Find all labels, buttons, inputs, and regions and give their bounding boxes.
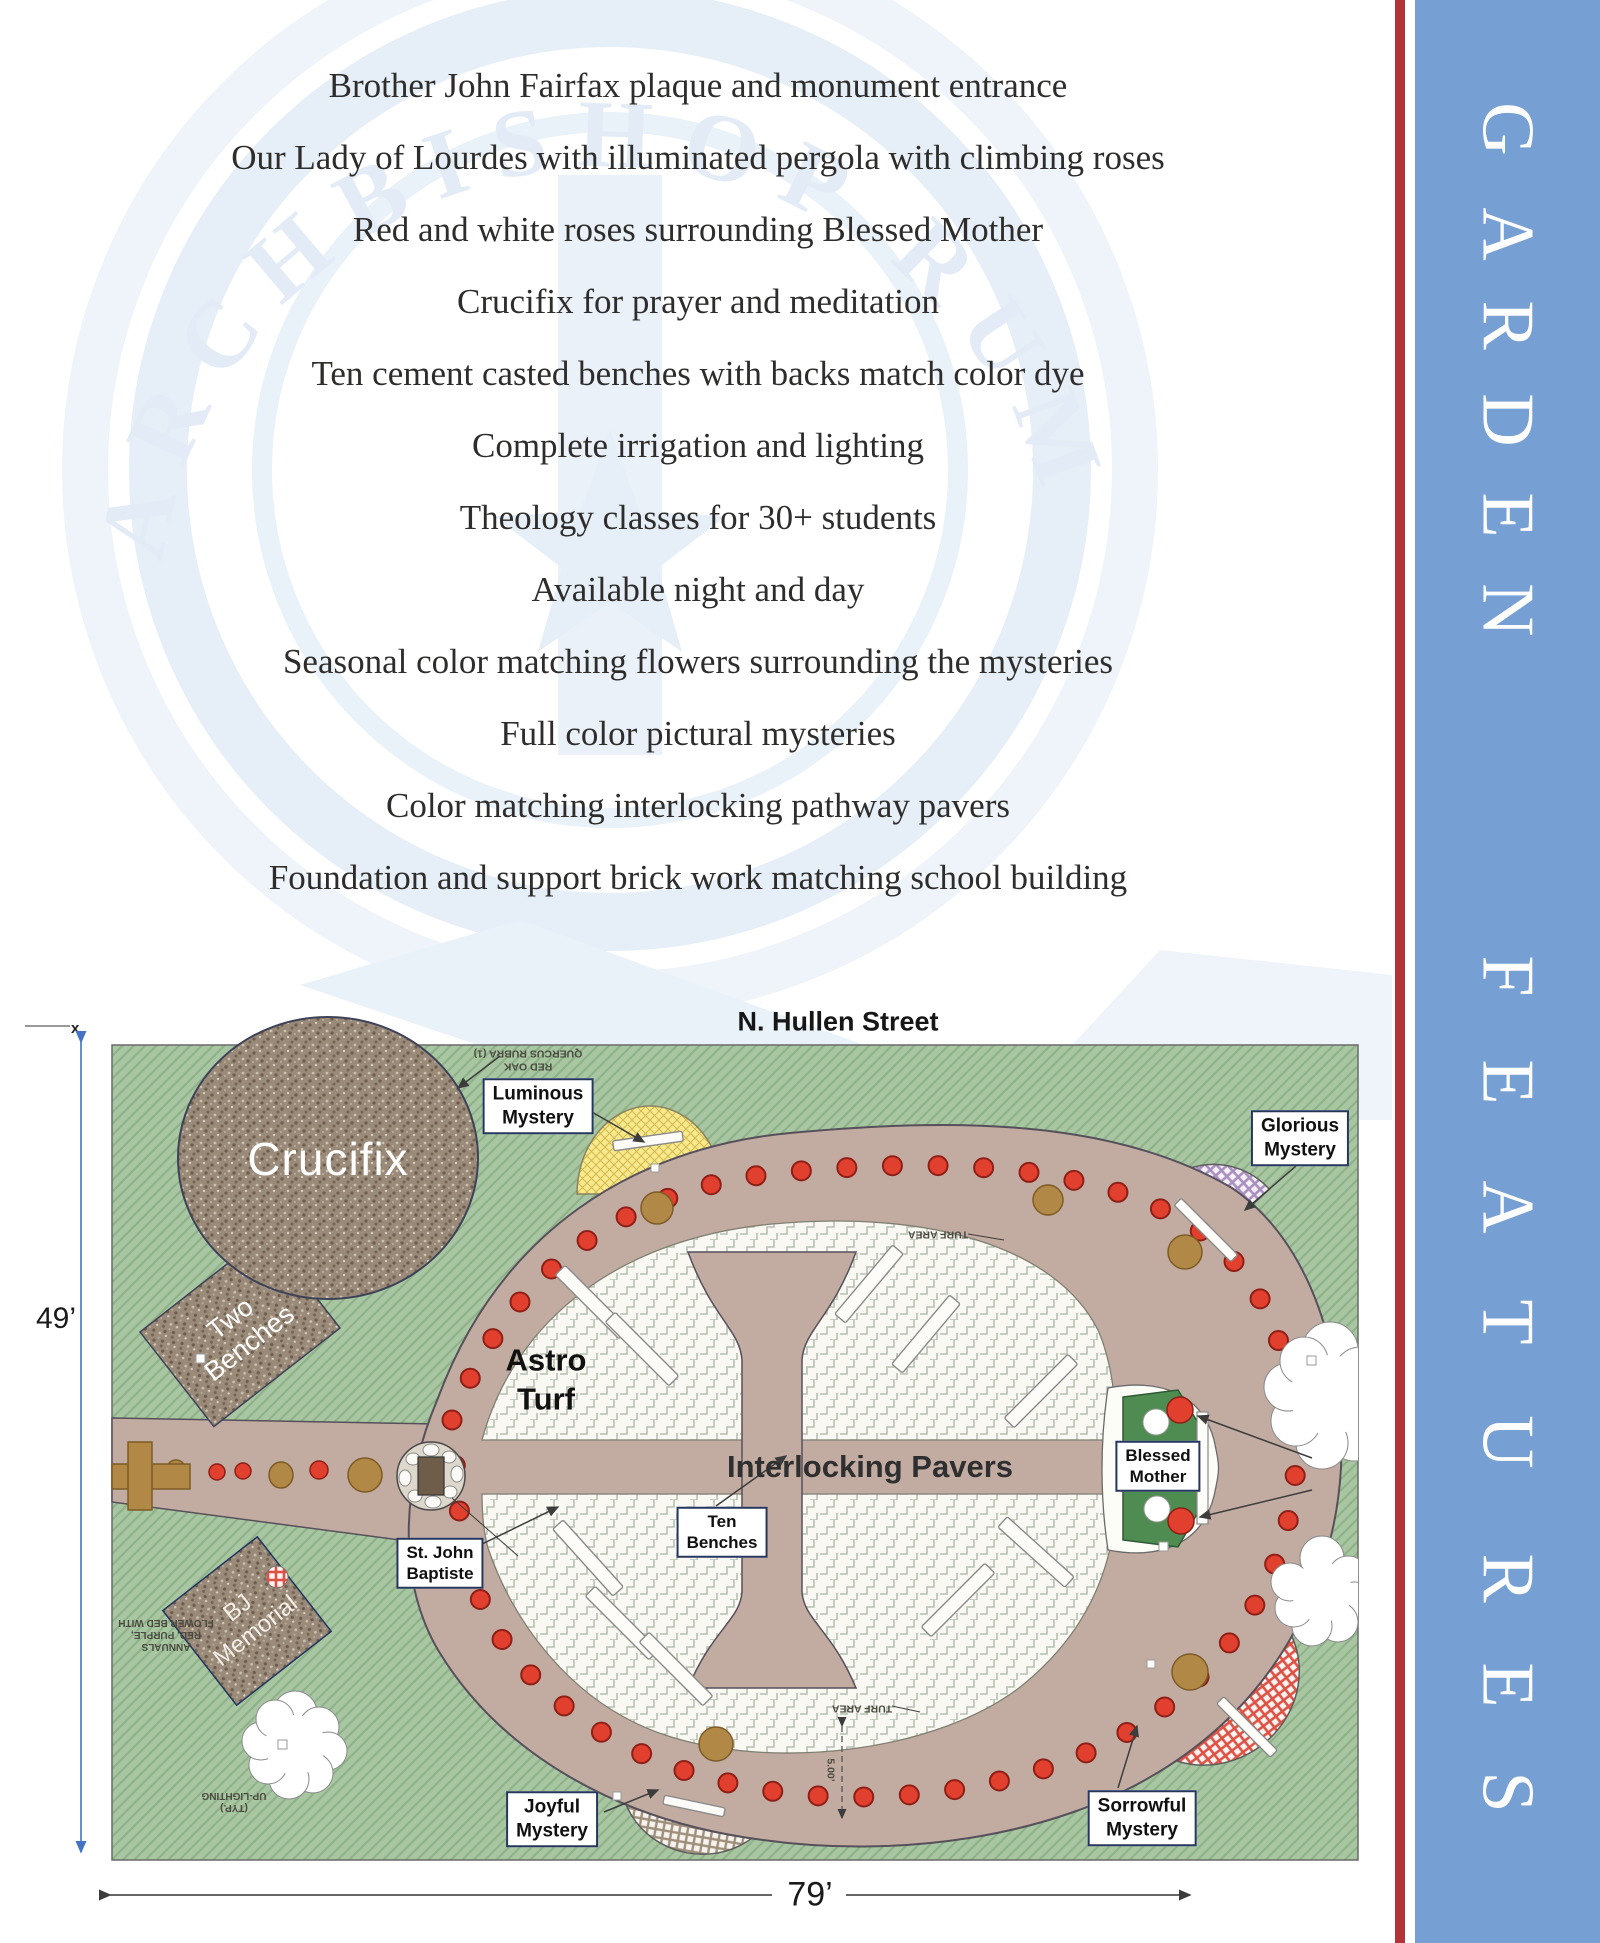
ten-benches-label: Ten Benches: [677, 1507, 768, 1558]
feature-item: Brother John Fairfax plaque and monument…: [0, 50, 1396, 122]
height-dimension: x: [25, 1020, 81, 1852]
garden-features-banner: G A R D E N F E A T U R E S: [1415, 0, 1600, 1943]
blessed-mother-label: Blessed Mother: [1115, 1441, 1200, 1492]
red-accent-stripe: [1395, 0, 1405, 1943]
crucifix-label: Crucifix: [247, 1132, 408, 1186]
feature-item: Crucifix for prayer and meditation: [0, 266, 1396, 338]
uplighting-annotation: (TYP.) UP-LIGHTING: [202, 1789, 267, 1813]
feature-item: Seasonal color matching flowers surround…: [0, 626, 1396, 698]
svg-text:x: x: [71, 1020, 80, 1037]
st-john-baptiste-label: St. John Baptiste: [396, 1538, 483, 1589]
feature-item: Complete irrigation and lighting: [0, 410, 1396, 482]
spacing-annotation: 5.00’: [824, 1758, 837, 1781]
sorrowful-mystery-label: Sorrowful Mystery: [1088, 1790, 1197, 1846]
feature-item: Available night and day: [0, 554, 1396, 626]
banner-letter: S: [1466, 1700, 1550, 1885]
feature-item: Full color pictural mysteries: [0, 698, 1396, 770]
feature-item: Foundation and support brick work matchi…: [0, 842, 1396, 914]
garden-features-list: Brother John Fairfax plaque and monument…: [0, 50, 1396, 914]
width-dim-label: 79’: [787, 1876, 832, 1915]
quercus-annotation: RED OAK QUERCUS RUBRA (1): [474, 1047, 583, 1072]
feature-item: Our Lady of Lourdes with illuminated per…: [0, 122, 1396, 194]
feature-item: Ten cement casted benches with backs mat…: [0, 338, 1396, 410]
turf-area-annotation-top: TURF AREA: [908, 1228, 968, 1241]
flower-bed-annotation: ANNUALS RED, PURPLE, FLOWER BED WITH: [118, 1616, 214, 1652]
glorious-mystery-label: Glorious Mystery: [1251, 1110, 1349, 1166]
pavers-label: Interlocking Pavers: [727, 1449, 1013, 1485]
turf-area-annotation-bottom: TURF AREA: [832, 1702, 892, 1715]
luminous-mystery-label: Luminous Mystery: [483, 1078, 594, 1134]
feature-item: Red and white roses surrounding Blessed …: [0, 194, 1396, 266]
feature-item: Theology classes for 30+ students: [0, 482, 1396, 554]
banner-letter: N: [1466, 518, 1550, 703]
street-label: N. Hullen Street: [737, 1007, 938, 1038]
feature-item: Color matching interlocking pathway pave…: [0, 770, 1396, 842]
brochure-page: ARCHBISHOP RUMMEL Brother John Fairfax p…: [0, 0, 1600, 1943]
height-dim-label: 49’: [8, 1302, 76, 1336]
joyful-mystery-label: Joyful Mystery: [506, 1791, 598, 1847]
astro-turf-label: Astro Turf: [506, 1341, 587, 1419]
